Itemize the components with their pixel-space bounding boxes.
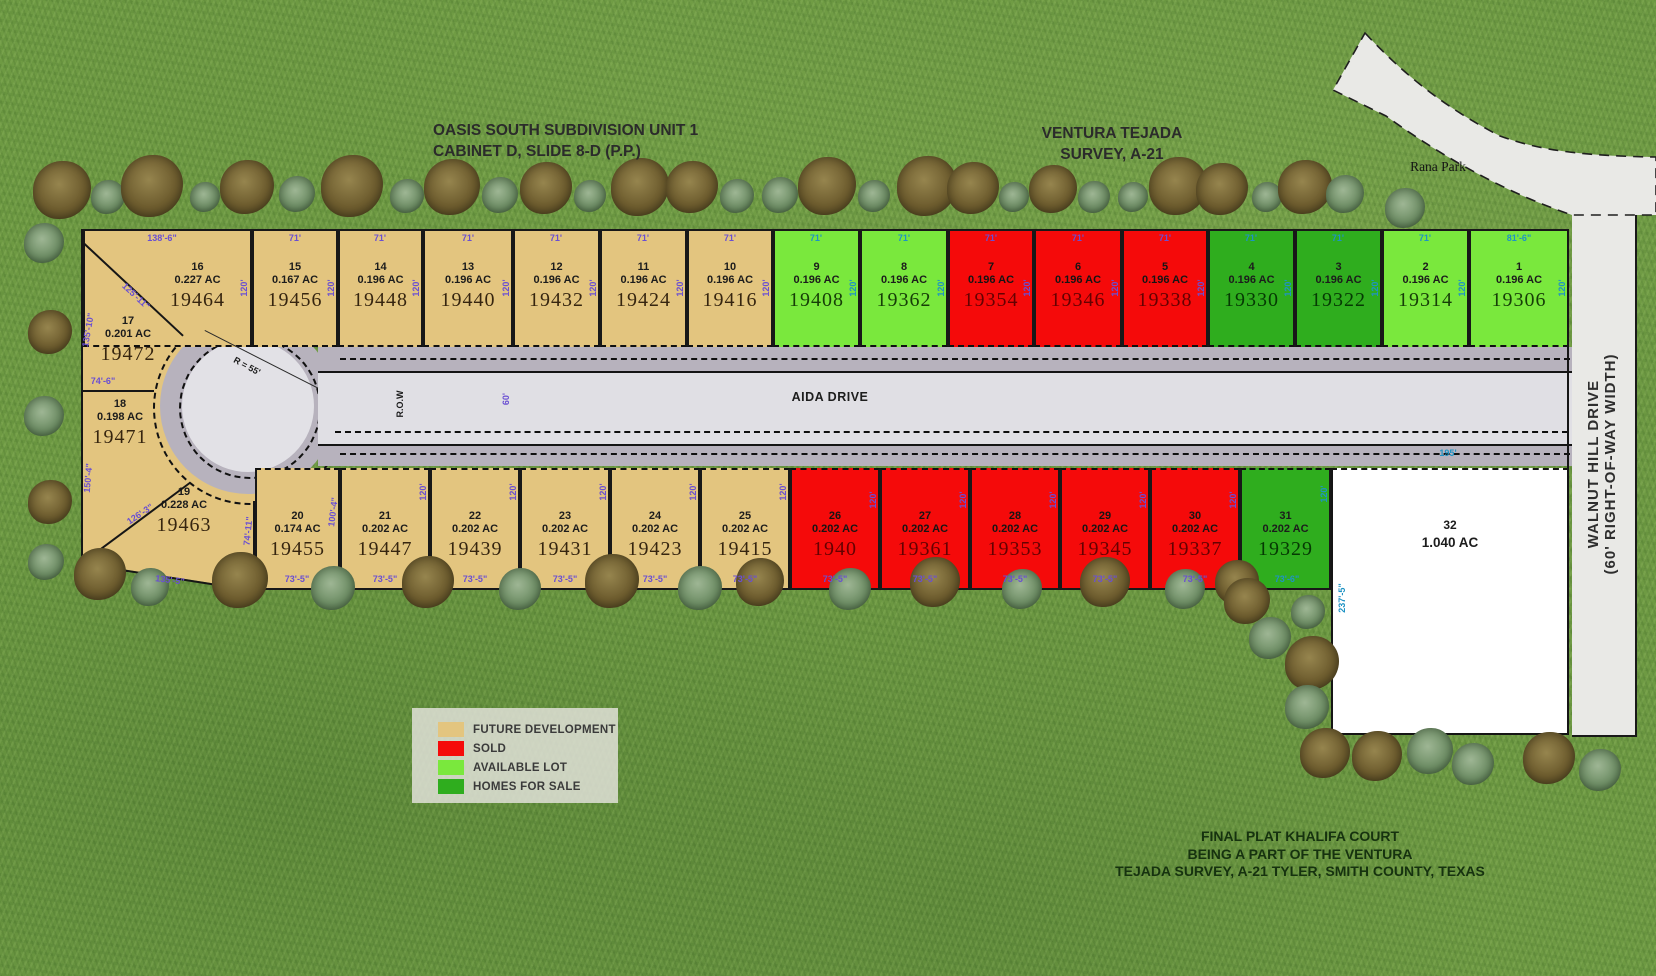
dimension-label: 120' (1457, 279, 1467, 296)
dimension-label: 71' (985, 233, 997, 243)
tree-icon (520, 162, 572, 214)
dimension-label: 120' (1196, 279, 1206, 296)
dimension-label: 195' (1439, 448, 1456, 458)
lot-label: 13 0.196 AC 19440 (425, 261, 511, 311)
dimension-label: 120' (598, 483, 608, 500)
dimension-label: 120' (1557, 279, 1567, 296)
tree-icon (390, 179, 424, 213)
lot-label[interactable]: 17 0.201 AC 19472 (86, 315, 170, 365)
tree-icon (798, 157, 856, 215)
tree-icon (1249, 617, 1291, 659)
lot-label: 27 0.202 AC 19361 (882, 510, 968, 560)
tree-icon (1579, 749, 1621, 791)
tree-icon (311, 566, 355, 610)
lot-6[interactable]: 6 0.196 AC 19346 (1034, 229, 1122, 347)
tree-icon (1291, 595, 1325, 629)
lot-label: 31 0.202 AC 19329 (1242, 510, 1329, 560)
lot-label: 21 0.202 AC 19447 (342, 510, 428, 560)
tree-icon (678, 566, 722, 610)
tree-icon (1078, 181, 1110, 213)
dimension-label: 120' (1022, 279, 1032, 296)
tree-icon (1118, 182, 1148, 212)
legend-item: FUTURE DEVELOPMENT (438, 720, 618, 739)
lot-label: 2 0.196 AC 19314 (1384, 261, 1467, 311)
dimension-label: 120' (675, 279, 685, 296)
lot-4[interactable]: 4 0.196 AC 19330 (1208, 229, 1295, 347)
tree-icon (74, 548, 126, 600)
tree-icon (585, 554, 639, 608)
lot-label: 28 0.202 AC 19353 (972, 510, 1058, 560)
dimension-label: 73'-5" (373, 574, 397, 584)
tree-icon (1285, 685, 1329, 729)
tree-icon (1300, 728, 1350, 778)
rana-park-label: Rana Park (1410, 159, 1466, 174)
lot-3[interactable]: 3 0.196 AC 19322 (1295, 229, 1382, 347)
tree-icon (28, 480, 72, 524)
dimension-label: 73'-5" (463, 574, 487, 584)
tree-icon (24, 396, 64, 436)
walnut-hill-drive-label: WALNUT HILL DRIVE (60' RIGHT-OF-WAY WIDT… (1585, 249, 1619, 679)
lot-11[interactable]: 11 0.196 AC 19424 (600, 229, 687, 347)
lot-1[interactable]: 1 0.196 AC 19306 (1469, 229, 1569, 347)
dimension-label: 120' (1283, 279, 1293, 296)
tree-icon (666, 161, 718, 213)
tree-icon (91, 180, 125, 214)
lot-label: 29 0.202 AC 19345 (1062, 510, 1148, 560)
tree-icon (611, 158, 669, 216)
dimension-label: 73'-5" (913, 574, 937, 584)
tree-icon (947, 162, 999, 214)
dimension-label: 120' (1048, 491, 1058, 508)
dimension-label: 71' (1419, 233, 1431, 243)
dimension-label: 120' (936, 279, 946, 296)
dimension-label: 73'-6" (1275, 574, 1299, 584)
lot-9[interactable]: 9 0.196 AC 19408 (773, 229, 860, 347)
tree-icon (999, 182, 1029, 212)
aida-drive-road (318, 347, 1572, 466)
tree-icon (190, 182, 220, 212)
tree-icon (762, 177, 798, 213)
dimension-label: 73'-5" (733, 574, 757, 584)
dimension-label: 71' (637, 233, 649, 243)
dimension-label: 120' (239, 279, 249, 296)
dimension-label: 71' (289, 233, 301, 243)
tree-icon (499, 568, 541, 610)
lot-label: 30 0.202 AC 19337 (1152, 510, 1238, 560)
dimension-label: 120' (1138, 491, 1148, 508)
tree-icon (720, 179, 754, 213)
dimension-label: 120' (761, 279, 771, 296)
lot-label: 3 0.196 AC 19322 (1297, 261, 1380, 311)
dimension-label: 73'-5" (553, 574, 577, 584)
dimension-label: 120' (688, 483, 698, 500)
lot-label: 6 0.196 AC 19346 (1036, 261, 1120, 311)
lot-label: 10 0.196 AC 19416 (689, 261, 771, 311)
tree-icon (858, 180, 890, 212)
tree-icon (33, 161, 91, 219)
dimension-label: 71' (898, 233, 910, 243)
dimension-label: 120' (501, 279, 511, 296)
dimension-label: 81'-6" (1507, 233, 1531, 243)
plat-footer-title: FINAL PLAT KHALIFA COURT BEING A PART OF… (1020, 828, 1580, 881)
lot-label: 20 0.174 AC 19455 (257, 510, 338, 560)
lot-label: 7 0.196 AC 19354 (950, 261, 1032, 311)
lot-label: 23 0.202 AC 19431 (522, 510, 608, 560)
dimension-label: 120' (1319, 485, 1329, 502)
row-dashed-line-south (340, 453, 1570, 455)
lot-2[interactable]: 2 0.196 AC 19314 (1382, 229, 1469, 347)
lot-label: 1 0.196 AC 19306 (1471, 261, 1567, 311)
dimension-label: 73'-5" (1183, 574, 1207, 584)
tree-icon (121, 155, 183, 217)
dimension-label: 120' (418, 483, 428, 500)
lot-label: 5 0.196 AC 19338 (1124, 261, 1206, 311)
dimension-label: 120' (1228, 491, 1238, 508)
tree-icon (482, 177, 518, 213)
dimension-label: 60' (501, 393, 511, 405)
dimension-label: 71' (1245, 233, 1257, 243)
lot-label: 25 0.202 AC 19415 (702, 510, 788, 560)
legend-item: HOMES FOR SALE (438, 777, 618, 796)
tree-icon (1407, 728, 1453, 774)
lot-label: 24 0.202 AC 19423 (612, 510, 698, 560)
aida-drive-label: AIDA DRIVE (730, 390, 930, 404)
tree-icon (1523, 732, 1575, 784)
tree-icon (28, 544, 64, 580)
lot-label: 14 0.196 AC 19448 (340, 261, 421, 311)
legend-swatch (438, 760, 464, 775)
lot-label: 26 0.202 AC 1940 (792, 510, 878, 560)
dimension-label: 237'-5" (1337, 583, 1347, 612)
lot-label: 15 0.167 AC 19456 (254, 261, 336, 311)
dimension-label: 71' (1159, 233, 1171, 243)
legend-item: AVAILABLE LOT (438, 758, 618, 777)
lot-label: 9 0.196 AC 19408 (775, 261, 858, 311)
dimension-label: 120' (508, 483, 518, 500)
cul-de-sac-pavement (182, 340, 314, 472)
lot-label: 12 0.196 AC 19432 (515, 261, 598, 311)
lot-12[interactable]: 12 0.196 AC 19432 (513, 229, 600, 347)
tree-icon (574, 180, 606, 212)
dimension-label: 120' (848, 279, 858, 296)
dimension-label: 73'-5" (1003, 574, 1027, 584)
tree-icon (321, 155, 383, 217)
tree-icon (1352, 731, 1402, 781)
dimension-label: 71' (550, 233, 562, 243)
tree-icon (24, 223, 64, 263)
lot-label: 11 0.196 AC 19424 (602, 261, 685, 311)
row-dashed-line-north (340, 358, 1570, 360)
lot-32[interactable]: 32 1.040 AC (1331, 468, 1569, 735)
tree-icon (402, 556, 454, 608)
dimension-label: 138'-6" (147, 233, 176, 243)
lot-label: 32 1.040 AC (1333, 518, 1567, 550)
legend-swatch (438, 722, 464, 737)
tree-icon (28, 310, 72, 354)
tree-icon (212, 552, 268, 608)
dimension-label: 71' (724, 233, 736, 243)
dimension-label: 71' (1332, 233, 1344, 243)
dimension-label: 120' (868, 491, 878, 508)
plat-boundary-line (1567, 229, 1569, 735)
tree-icon (1452, 743, 1494, 785)
dimension-label: 120' (958, 491, 968, 508)
lot-label: 4 0.196 AC 19330 (1210, 261, 1293, 311)
legend-swatch (438, 779, 464, 794)
dimension-label: 73'-5" (1093, 574, 1117, 584)
tree-icon (424, 159, 480, 215)
lot-13[interactable]: 13 0.196 AC 19440 (423, 229, 513, 347)
road-centerline (335, 431, 1568, 433)
lot-26[interactable]: 26 0.202 AC 1940 (790, 468, 880, 590)
lot-label[interactable]: 18 0.198 AC 19471 (78, 398, 162, 448)
plat-boundary-line (81, 229, 83, 563)
dimension-label: 73'-5" (823, 574, 847, 584)
tree-icon (1029, 165, 1077, 213)
subdivision-title: OASIS SOUTH SUBDIVISION UNIT 1 CABINET D… (433, 121, 698, 162)
dimension-label: R.O.W (395, 391, 405, 418)
dimension-label: 120' (1370, 279, 1380, 296)
survey-title: VENTURA TEJADA SURVEY, A-21 (1012, 124, 1212, 165)
dimension-label: 120' (778, 483, 788, 500)
dimension-label: 120' (411, 279, 421, 296)
lot-label: 16 0.227 AC 19464 (145, 261, 250, 311)
legend: FUTURE DEVELOPMENT SOLD AVAILABLE LOT HO… (412, 708, 618, 803)
dimension-label: 120' (588, 279, 598, 296)
dimension-label: 120' (326, 279, 336, 296)
lot-label: 8 0.196 AC 19362 (862, 261, 946, 311)
tree-icon (220, 160, 274, 214)
subdivision-plat-map: AIDA DRIVE WALNUT HILL DRIVE (60' RIGHT-… (0, 0, 1656, 976)
dimension-label: 73'-5" (643, 574, 667, 584)
dimension-label: 71' (374, 233, 386, 243)
dimension-label: 73'-5" (285, 574, 309, 584)
legend-swatch (438, 741, 464, 756)
dimension-label: 71' (1072, 233, 1084, 243)
legend-item: SOLD (438, 739, 618, 758)
lot-boundary-line (83, 390, 154, 392)
aida-drive-pavement (318, 371, 1572, 446)
dimension-label: 71' (810, 233, 822, 243)
lot-8[interactable]: 8 0.196 AC 19362 (860, 229, 948, 347)
lot-label: 22 0.202 AC 19439 (432, 510, 518, 560)
dimension-label: 120' (1110, 279, 1120, 296)
dimension-label: 71' (462, 233, 474, 243)
tree-icon (279, 176, 315, 212)
dimension-label: 74'-6" (91, 376, 115, 386)
